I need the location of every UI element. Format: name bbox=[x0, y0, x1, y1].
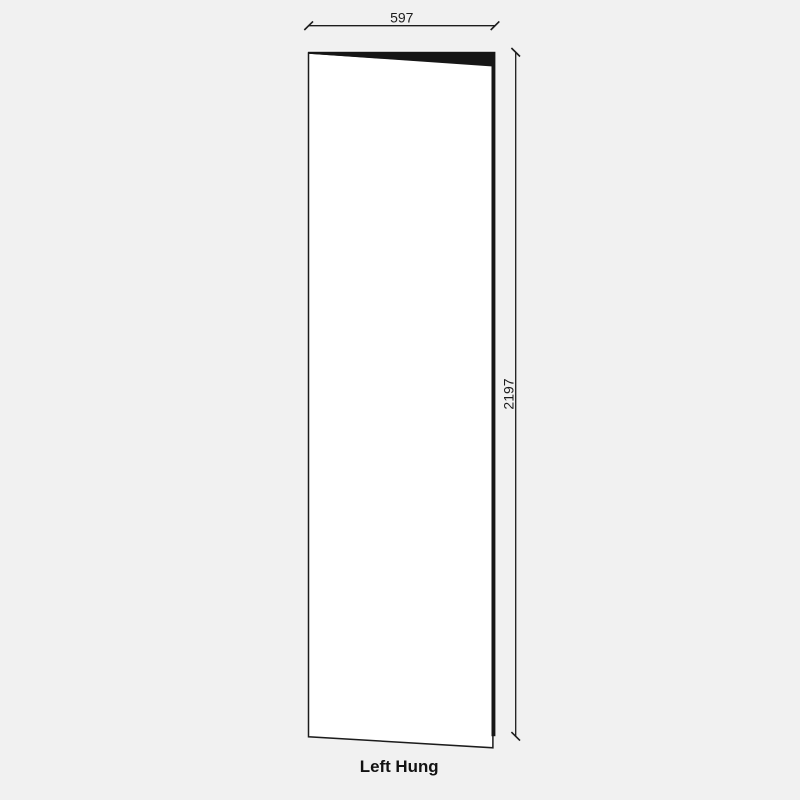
svg-text:Left Hung: Left Hung bbox=[360, 757, 439, 776]
svg-text:2197: 2197 bbox=[501, 378, 517, 409]
svg-text:597: 597 bbox=[390, 10, 414, 26]
